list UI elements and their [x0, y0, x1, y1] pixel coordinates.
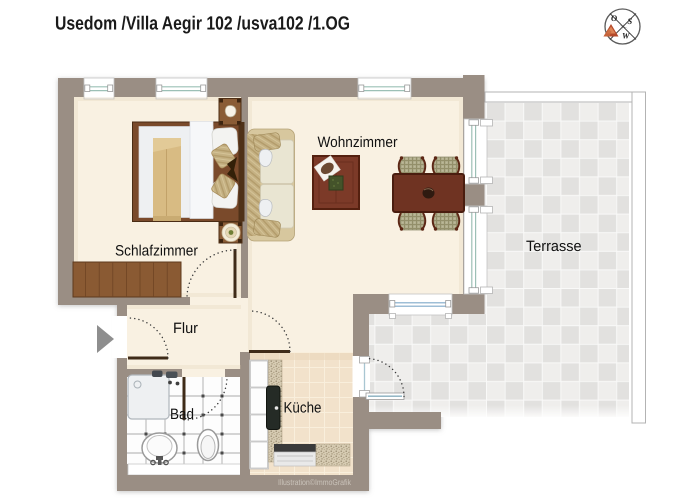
svg-text:Wohnzimmer: Wohnzimmer [318, 134, 398, 151]
svg-text:S: S [628, 16, 633, 26]
svg-text:O: O [611, 13, 617, 23]
svg-text:Terrasse: Terrasse [526, 238, 582, 255]
svg-text:Flur: Flur [173, 320, 198, 337]
svg-text:Usedom /Villa Aegir 102 /usva1: Usedom /Villa Aegir 102 /usva102 /1.OG [55, 14, 350, 35]
svg-text:Illustration©ImmoGrafik: Illustration©ImmoGrafik [278, 478, 352, 487]
svg-text:Schlafzimmer: Schlafzimmer [115, 243, 198, 260]
svg-text:Küche: Küche [284, 400, 322, 417]
svg-text:Bad: Bad [170, 406, 194, 423]
